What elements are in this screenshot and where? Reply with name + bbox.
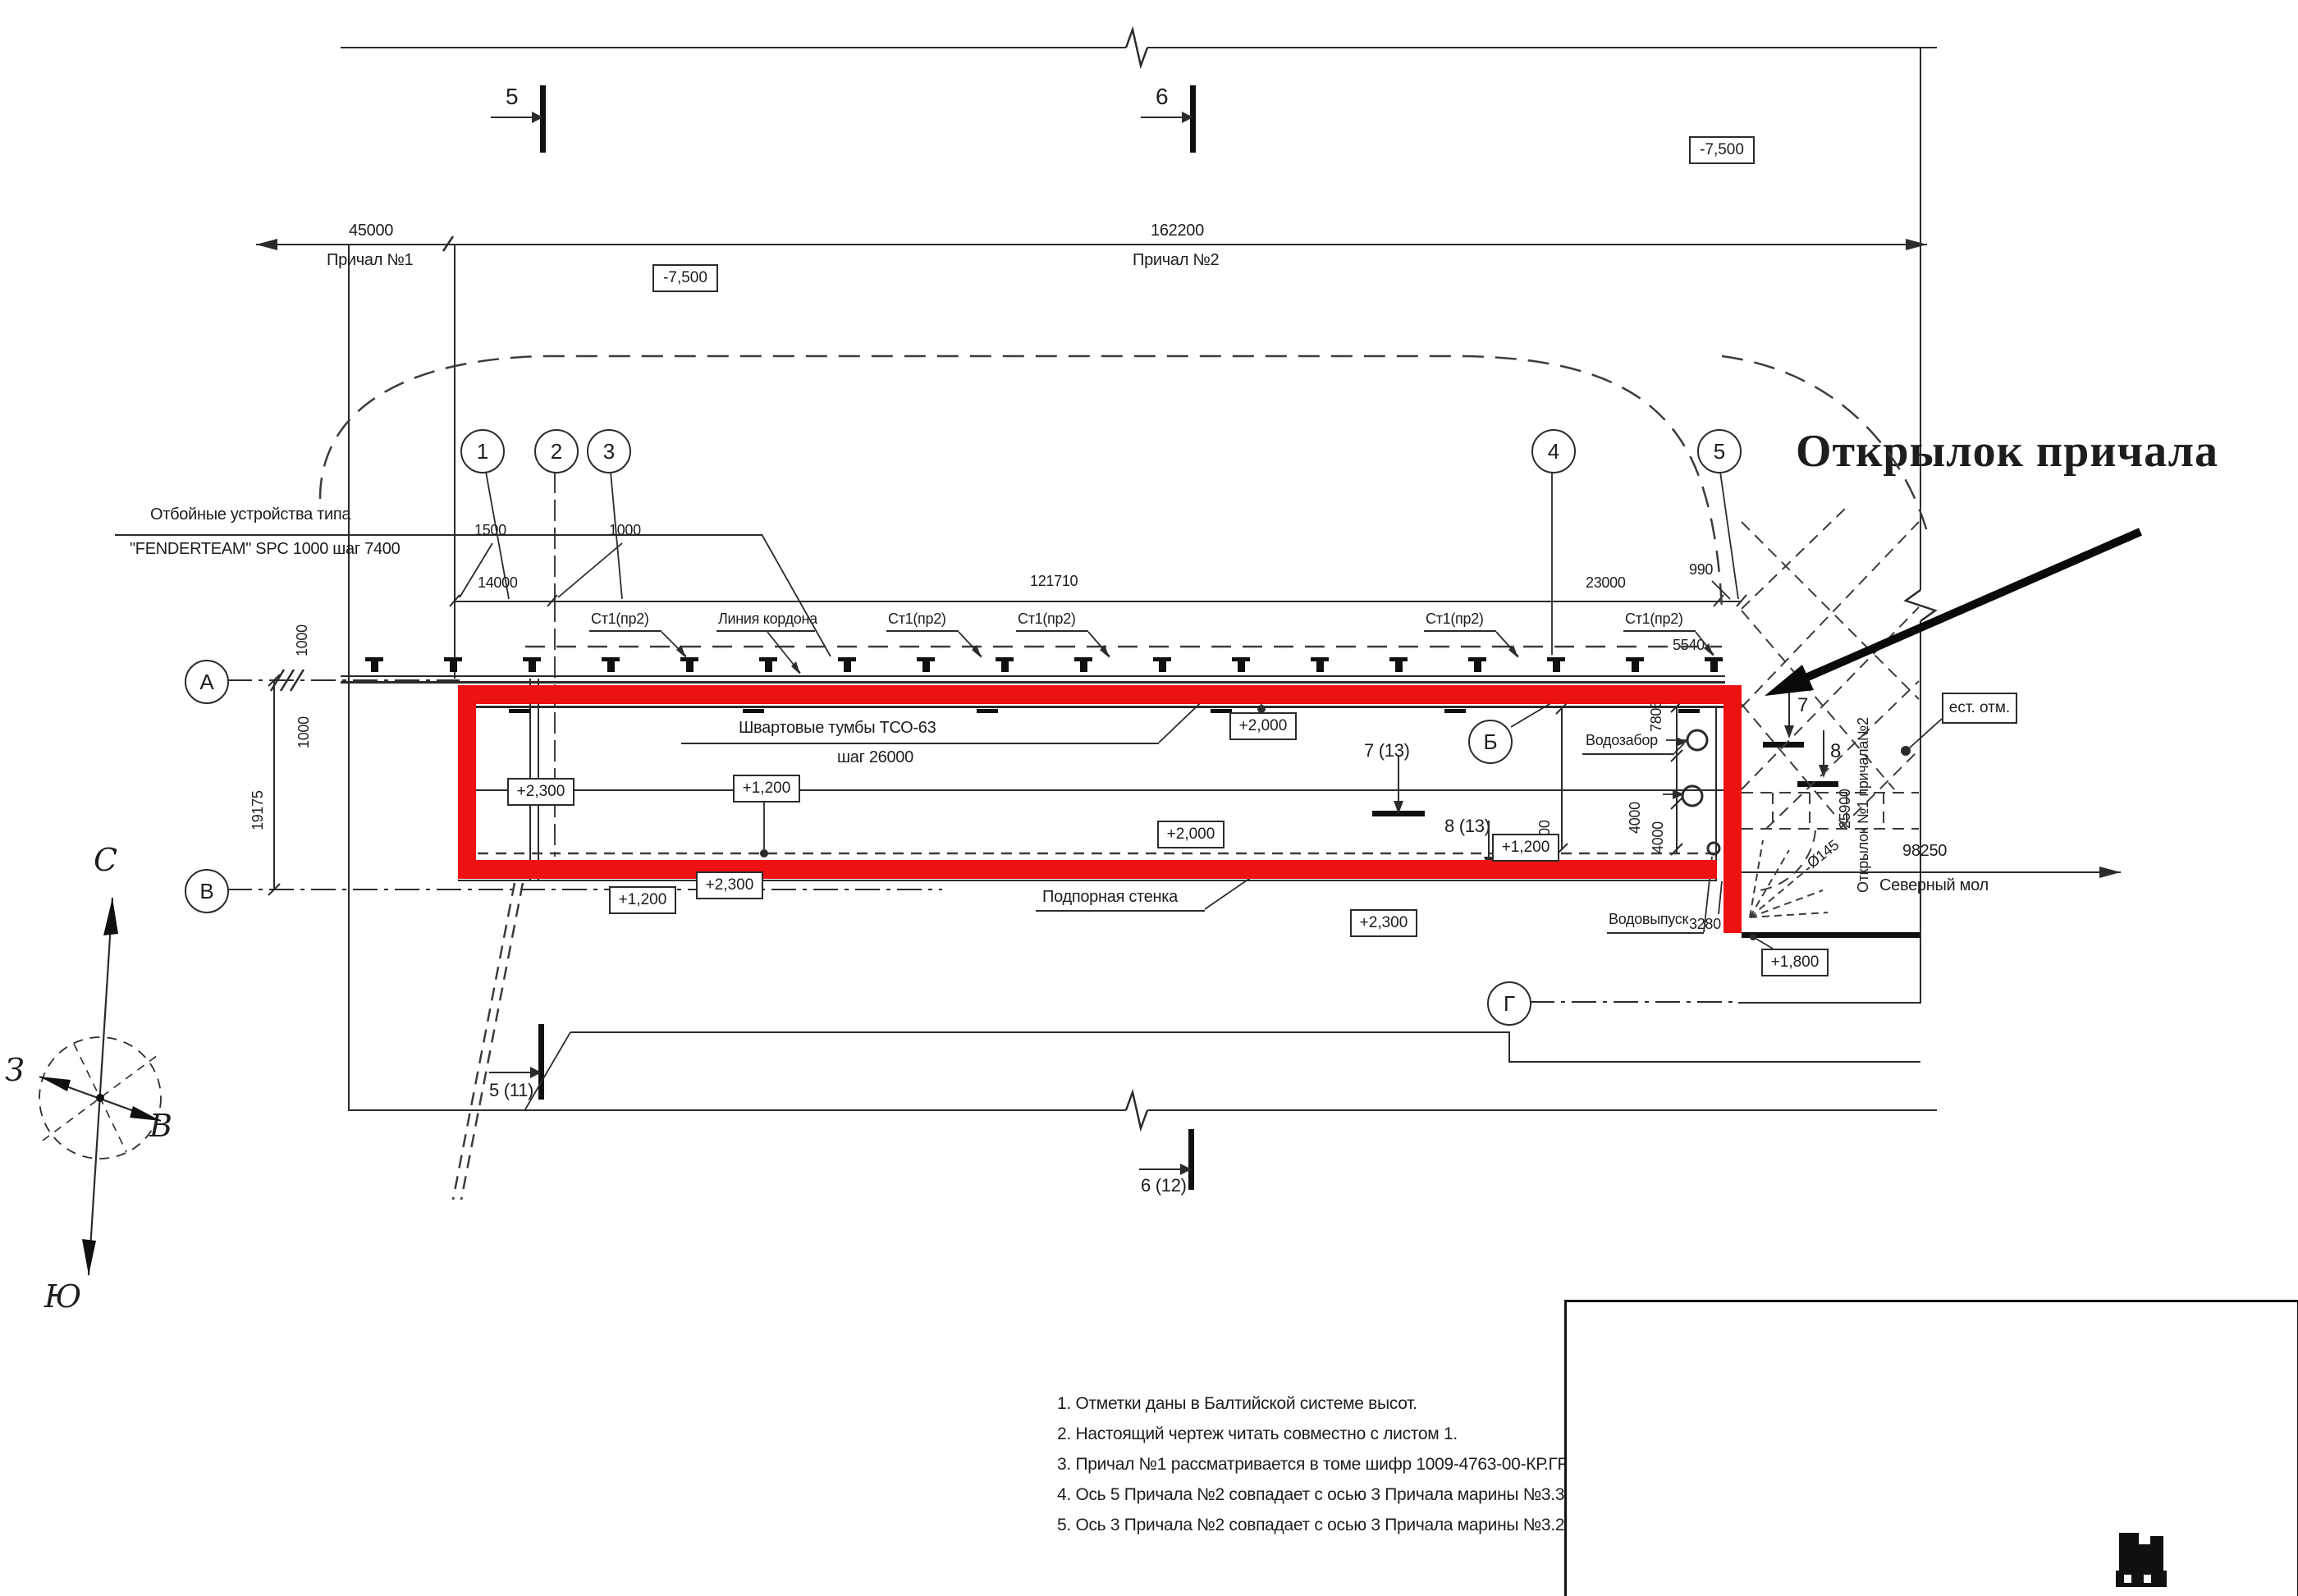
axis-circle-2: 2: [534, 429, 579, 473]
slope-fan: [1750, 840, 1828, 917]
axis-label: Б: [1483, 729, 1497, 755]
axis-circle-5: 5: [1697, 429, 1742, 473]
axis-circle-G: Г: [1487, 981, 1531, 1026]
highlight-bottom-band: [458, 860, 1717, 879]
elevation-value: +1,200: [619, 891, 667, 909]
axis-leader-lines: [486, 472, 1738, 857]
elevation-box: +2,000: [1229, 712, 1297, 740]
compass-rose: [39, 898, 161, 1275]
axis-circle-3: 3: [587, 429, 631, 473]
elevation-value: +1,800: [1771, 953, 1820, 972]
axis-label: 1: [477, 439, 488, 464]
elevation-value: +2,300: [706, 876, 754, 894]
elevation-box: +1,800: [1761, 949, 1829, 976]
axis-label: 5: [1714, 439, 1725, 464]
natural-mark-label: ест. отм.: [1949, 699, 2010, 717]
elevation-value: -7,500: [1700, 141, 1744, 159]
axis-label: 4: [1548, 439, 1559, 464]
highlight-top-band: [458, 685, 1742, 704]
natural-mark-box: ест. отм.: [1942, 693, 2017, 724]
elevation-value: +2,300: [1360, 914, 1408, 932]
highlight-right-band: [1723, 685, 1742, 933]
elevation-value: +2,300: [517, 783, 565, 801]
highlight-left-band: [458, 685, 476, 879]
elevation-value: -7,500: [663, 269, 707, 287]
elevation-box: +1,200: [609, 886, 676, 914]
elevation-box: +2,300: [1350, 909, 1417, 937]
axis-label: А: [199, 670, 213, 695]
axis-label: 2: [551, 439, 562, 464]
elevation-box: +2,300: [696, 871, 763, 899]
axis-label: 3: [603, 439, 615, 464]
elevation-box: +2,300: [507, 778, 574, 806]
elevation-value: +1,200: [743, 780, 791, 798]
axis-circle-B: Б: [1468, 720, 1513, 764]
elevation-box: -7,500: [1689, 136, 1755, 164]
title-block: [1564, 1300, 2298, 1596]
water-intake-symbols: [1663, 730, 1719, 854]
axis-circle-V: В: [185, 869, 229, 913]
axis-circle-1: 1: [460, 429, 505, 473]
elevation-value: +2,000: [1239, 717, 1288, 735]
dim-arrows: [256, 112, 2121, 1175]
callout-arrow: [1765, 532, 2140, 696]
axis-label: Г: [1504, 991, 1515, 1017]
axis-label: В: [199, 879, 213, 904]
break-marks: [271, 30, 1935, 1128]
elevation-box: +2,000: [1157, 821, 1225, 848]
elevation-value: +1,200: [1502, 839, 1550, 857]
elevation-box: +1,200: [733, 775, 800, 803]
elevation-box: -7,500: [652, 264, 718, 292]
elevation-value: +2,000: [1167, 825, 1215, 844]
drawing-sheet: 1 2 3 4 5 А Б В Г -7,500 -7,500 +2,300 +…: [0, 0, 2298, 1596]
wing-dashed-grid: [1742, 509, 1919, 891]
elevation-box: +1,200: [1492, 834, 1559, 862]
axis-circle-A: А: [185, 660, 229, 704]
axis-circle-4: 4: [1531, 429, 1576, 473]
